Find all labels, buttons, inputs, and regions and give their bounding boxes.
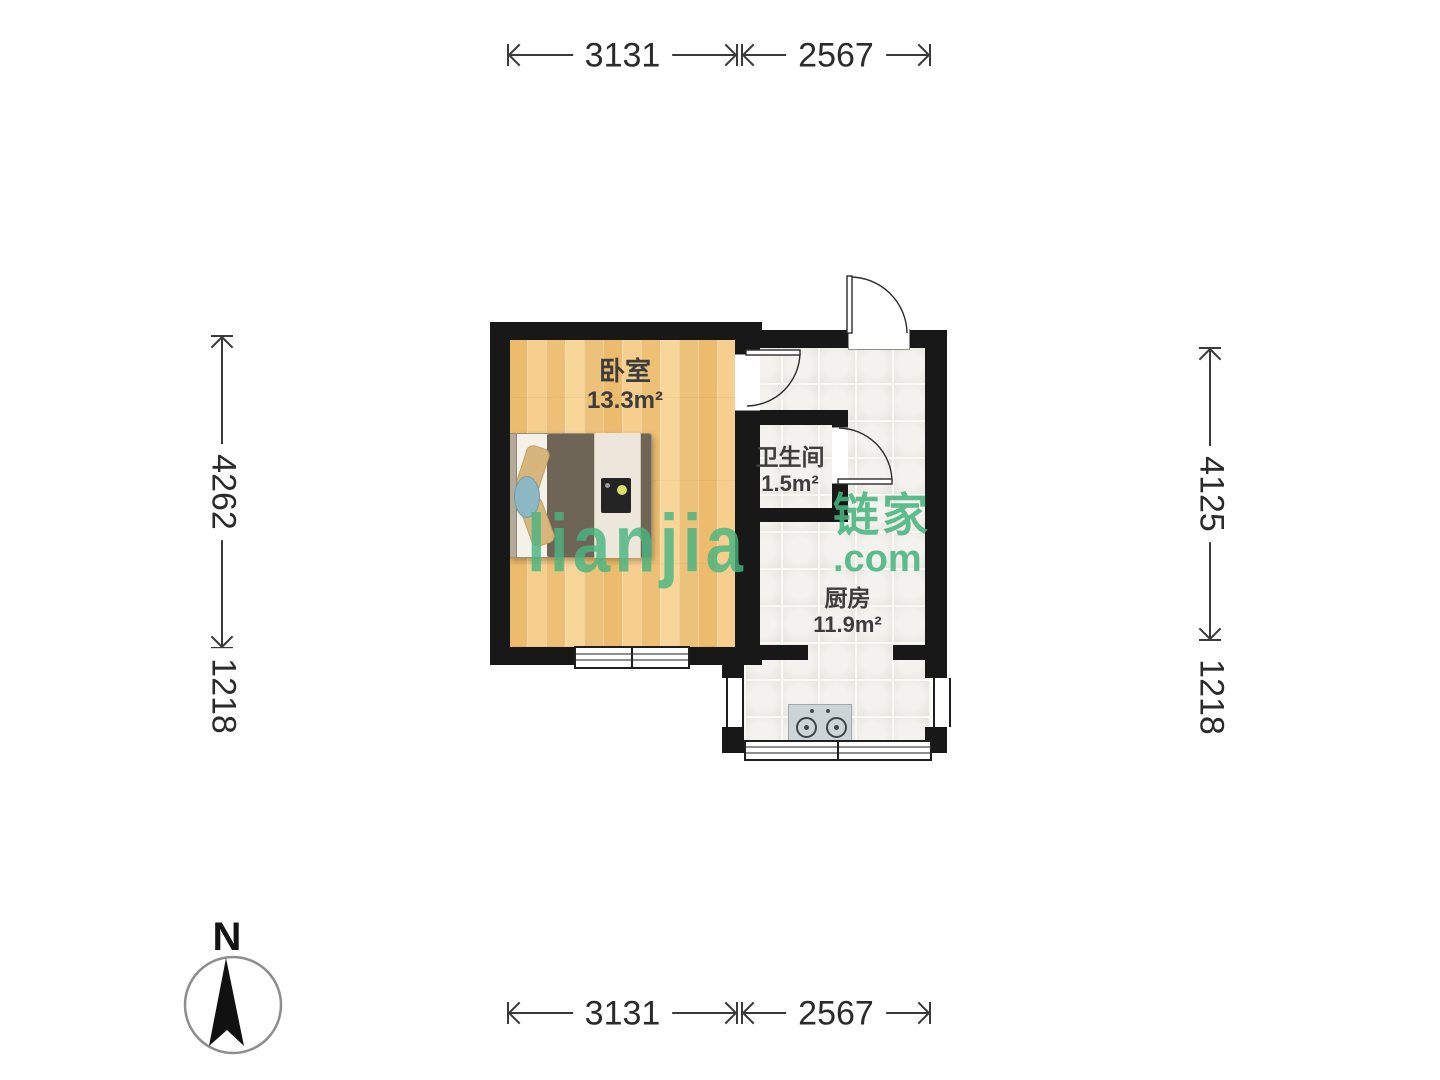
bathroom-area: 1.5m² xyxy=(740,471,840,497)
balcony-post-left-bottom xyxy=(722,727,744,753)
bathroom-name: 卫生间 xyxy=(740,444,840,471)
dim-value: 4262 xyxy=(204,444,243,540)
wall-kitchen-top-right xyxy=(908,330,947,348)
wall-bathroom-bottom xyxy=(735,508,848,522)
wall-bedroom-left xyxy=(490,322,510,665)
bedroom-label: 卧室 13.3m² xyxy=(540,356,710,415)
stove-burner xyxy=(826,717,847,738)
wall-kitchen-bottom-right xyxy=(893,645,930,660)
dim-value: 3131 xyxy=(573,995,673,1034)
dim-arrow xyxy=(508,44,531,67)
dim-bottom-width-left: 3131 xyxy=(508,1012,737,1014)
dim-arrow xyxy=(508,1002,531,1025)
dim-arrow xyxy=(742,1002,765,1025)
stove-knob xyxy=(810,709,814,713)
bedroom-area: 13.3m² xyxy=(540,387,710,415)
balcony-post-right-top xyxy=(925,660,947,678)
dim-value: 4125 xyxy=(1192,446,1231,542)
dim-arrow xyxy=(715,44,738,67)
entry-door-opening xyxy=(848,329,910,350)
dim-arrow xyxy=(1199,618,1222,641)
balcony-post-left-top xyxy=(722,662,744,678)
kitchen-name: 厨房 xyxy=(790,585,905,612)
stove-knob xyxy=(826,709,830,713)
dim-left-height-upper: 4262 xyxy=(221,336,223,648)
compass-north-label: N xyxy=(213,915,242,959)
dim-left-height-lower: 1218 xyxy=(221,652,223,740)
dim-arrow xyxy=(1199,348,1222,371)
dim-right-height-upper: 4125 xyxy=(1209,348,1211,640)
dim-value: 2567 xyxy=(786,995,886,1034)
dim-value: 2567 xyxy=(786,37,886,76)
dim-arrow xyxy=(908,44,931,67)
entry-door-arc xyxy=(850,277,907,333)
dim-arrow xyxy=(211,626,234,649)
lianjia-watermark-cn: 链家 xyxy=(833,492,931,538)
dim-bottom-width-right: 2567 xyxy=(742,1012,930,1014)
stove-burner xyxy=(796,717,817,738)
bedroom-door-opening xyxy=(735,354,760,411)
bedroom-name: 卧室 xyxy=(540,356,710,387)
balcony-right-window xyxy=(933,678,951,727)
balcony-bottom-window xyxy=(744,740,932,761)
balcony-left-window xyxy=(726,678,744,727)
entry-door-leaf xyxy=(847,276,852,333)
dim-top-width-right: 2567 xyxy=(742,54,930,56)
kitchen-area: 11.9m² xyxy=(790,612,905,638)
stove xyxy=(788,704,852,745)
wall-kitchen-bottom-left xyxy=(743,645,808,660)
bedroom-window xyxy=(574,646,690,669)
lianjia-watermark-domain: .com xyxy=(833,540,922,578)
dim-value: 1218 xyxy=(1192,649,1231,745)
dim-arrow xyxy=(715,1002,738,1025)
compass: N xyxy=(160,903,310,1058)
dim-top-width-left: 3131 xyxy=(508,54,737,56)
dim-value: 3131 xyxy=(573,37,673,76)
wall-kitchen-top-left xyxy=(755,330,848,348)
dim-arrow xyxy=(908,1002,931,1025)
dim-arrow xyxy=(211,336,234,359)
dim-right-height-lower: 1218 xyxy=(1209,652,1211,742)
lianjia-watermark-logo: lianjia xyxy=(527,502,747,584)
wall-bathroom-right-stub xyxy=(832,410,848,427)
bathroom-label: 卫生间 1.5m² xyxy=(740,444,840,497)
floorplan-canvas: 卧室 13.3m² 卫生间 1.5m² 厨房 11.9m² lianjia 链家… xyxy=(0,0,1440,1080)
kitchen-label: 厨房 11.9m² xyxy=(790,585,905,638)
dim-value: 1218 xyxy=(204,648,243,744)
dim-arrow xyxy=(742,44,765,67)
wall-bedroom-top xyxy=(490,322,762,340)
wall-bedroom-bottom-left xyxy=(490,647,574,665)
